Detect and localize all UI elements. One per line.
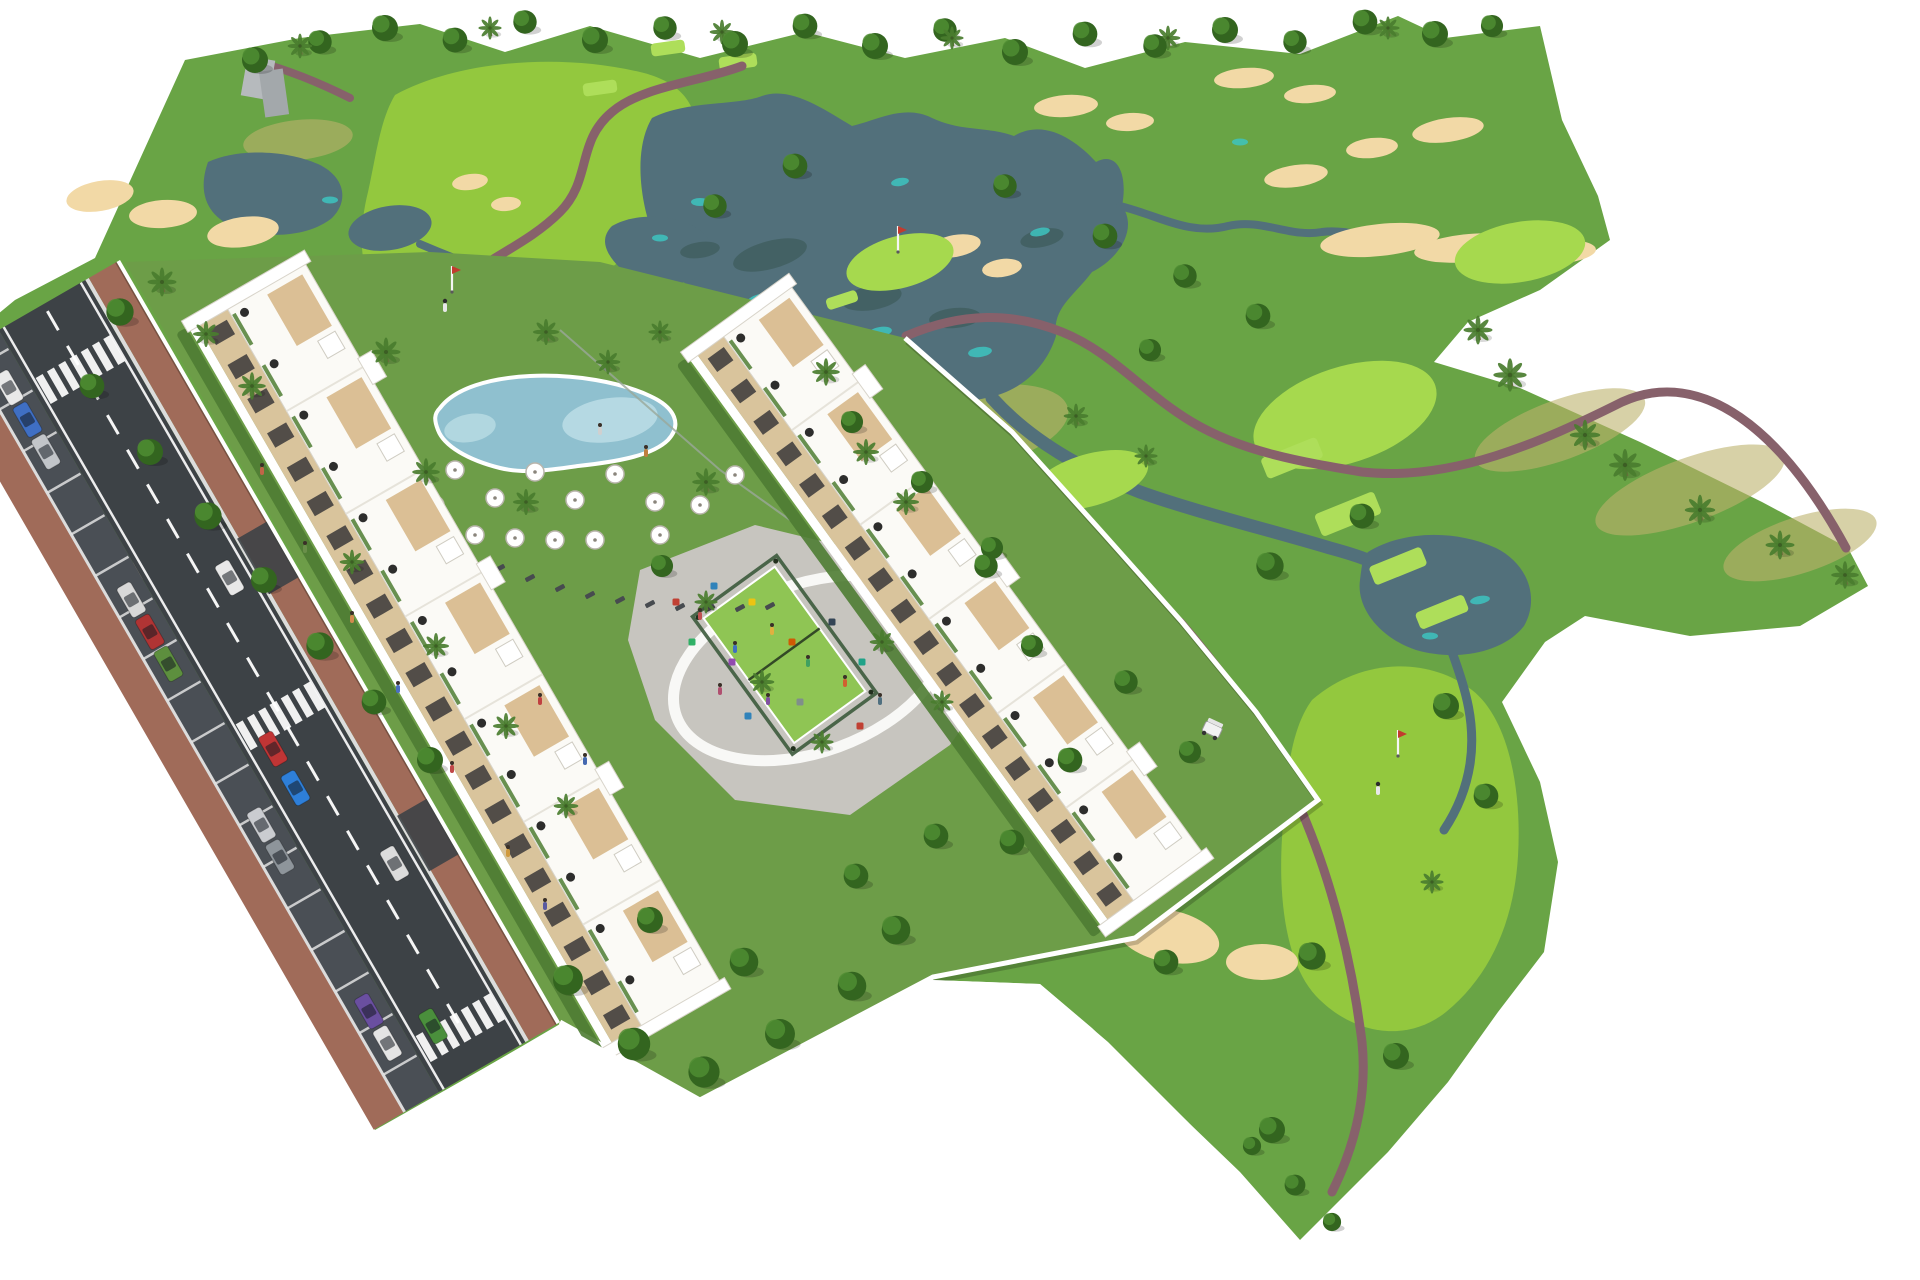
tree-highlight — [793, 14, 809, 30]
tree-highlight — [309, 31, 324, 46]
teal-water-accent — [1232, 139, 1248, 146]
parasol — [526, 463, 544, 481]
tree-highlight — [1139, 339, 1153, 353]
person — [350, 611, 354, 623]
palm-tree — [812, 358, 840, 386]
palm-tree — [288, 34, 313, 59]
tree-highlight — [841, 411, 855, 425]
parasol — [586, 531, 604, 549]
palm-tree — [870, 630, 895, 655]
palm-tree — [1420, 870, 1443, 893]
tree-highlight — [1246, 304, 1262, 320]
tree — [722, 31, 753, 58]
tree — [513, 10, 541, 34]
tree — [1073, 22, 1102, 48]
tree-highlight — [1144, 35, 1159, 50]
tree-highlight — [243, 48, 260, 65]
person-head — [718, 683, 722, 687]
person-body — [543, 902, 547, 910]
tree-highlight — [1323, 1213, 1335, 1225]
tree-highlight — [1115, 671, 1130, 686]
person-body — [878, 697, 882, 705]
golfer-body — [1376, 786, 1380, 795]
playground-equipment — [729, 659, 736, 666]
parasol — [646, 493, 664, 511]
tree-highlight — [195, 503, 213, 521]
person — [770, 623, 774, 635]
person-head — [450, 761, 454, 765]
palm-crown — [864, 450, 868, 454]
palm-crown — [720, 30, 723, 33]
tree-highlight — [1003, 40, 1020, 57]
tree-highlight — [1350, 504, 1366, 520]
palm-tree — [1134, 444, 1157, 467]
palm-crown — [658, 330, 661, 333]
tree-highlight — [107, 299, 125, 317]
person-body — [644, 449, 648, 457]
person — [698, 608, 702, 620]
palm-crown — [1843, 573, 1847, 577]
render-canvas — [0, 0, 1920, 1280]
person-head — [538, 693, 542, 697]
person — [543, 898, 547, 910]
tree-highlight — [1000, 830, 1016, 846]
tree-highlight — [514, 11, 529, 26]
palm-crown — [250, 384, 254, 388]
palm-crown — [350, 560, 353, 563]
tree-highlight — [924, 824, 940, 840]
tree-highlight — [1481, 15, 1495, 29]
parasol — [691, 496, 709, 514]
person-body — [260, 467, 264, 475]
playground-equipment — [711, 583, 718, 590]
person-body — [733, 645, 737, 653]
palm-crown — [1430, 880, 1433, 883]
palm-tree — [148, 268, 177, 297]
person-body — [718, 687, 722, 695]
palm-tree — [193, 321, 219, 347]
person — [766, 693, 770, 705]
palm-crown — [1508, 373, 1513, 378]
playground-equipment — [789, 639, 796, 646]
tree-highlight — [766, 1020, 786, 1040]
palm-crown — [488, 26, 491, 29]
tree-highlight — [638, 908, 655, 925]
person-head — [770, 623, 774, 627]
tree-highlight — [1284, 31, 1299, 46]
palm-tree — [478, 16, 501, 39]
palm-crown — [424, 470, 428, 474]
palm-crown — [704, 600, 707, 603]
tree-highlight — [1260, 1118, 1277, 1135]
person-head — [260, 463, 264, 467]
palm-tree — [423, 633, 449, 659]
tree-highlight — [307, 633, 325, 651]
person-head — [766, 693, 770, 697]
tree — [1283, 30, 1311, 54]
parasol-pole — [453, 468, 457, 472]
tree-highlight — [418, 748, 435, 765]
playground-equipment — [857, 723, 864, 730]
palm-crown — [524, 500, 528, 504]
tree-highlight — [1434, 694, 1451, 711]
person-head — [698, 608, 702, 612]
teal-water-accent — [322, 197, 338, 204]
palm-tree — [1064, 404, 1089, 429]
person-body — [506, 849, 510, 857]
palm-crown — [760, 680, 763, 683]
person-body — [598, 427, 602, 435]
palm-crown — [204, 332, 208, 336]
palm-tree — [853, 439, 879, 465]
palm-crown — [940, 700, 943, 703]
palm-tree — [1609, 449, 1641, 481]
tree-highlight — [783, 154, 799, 170]
tree-highlight — [1154, 950, 1170, 966]
person-body — [766, 697, 770, 705]
parasol-pole — [613, 472, 617, 476]
palm-tree — [648, 320, 671, 343]
person — [878, 693, 882, 705]
tree-highlight — [1243, 1137, 1255, 1149]
person-body — [806, 659, 810, 667]
tree — [1422, 21, 1453, 48]
tree-highlight — [1073, 22, 1089, 38]
parasol-pole — [658, 533, 662, 537]
tree-highlight — [863, 34, 880, 51]
parasol-pole — [573, 498, 577, 502]
parasol-pole — [533, 470, 537, 474]
tree-highlight — [583, 28, 600, 45]
person — [506, 845, 510, 857]
parasol-pole — [493, 496, 497, 500]
tree-highlight — [362, 690, 378, 706]
parasol — [651, 526, 669, 544]
tree — [793, 14, 822, 40]
palm-crown — [820, 740, 823, 743]
person — [806, 655, 810, 667]
palm-tree — [493, 713, 519, 739]
person-head — [350, 611, 354, 615]
parasol — [506, 529, 524, 547]
palm-tree — [238, 372, 266, 400]
palm-crown — [704, 480, 708, 484]
palm-tree — [1831, 561, 1859, 589]
person-body — [770, 627, 774, 635]
person-head — [583, 753, 587, 757]
tree-highlight — [1257, 553, 1275, 571]
tree-highlight — [844, 864, 860, 880]
palm-crown — [1623, 463, 1627, 467]
tree-highlight — [443, 28, 459, 44]
tree-highlight — [1353, 10, 1369, 26]
flag-hole — [896, 250, 899, 253]
aerial-development-render — [0, 0, 1920, 1280]
person-head — [843, 675, 847, 679]
palm-crown — [1144, 454, 1147, 457]
tree-highlight — [704, 195, 719, 210]
palm-tree — [372, 338, 401, 367]
parasol — [486, 489, 504, 507]
person — [303, 541, 307, 553]
palm-crown — [1386, 26, 1389, 29]
person — [644, 445, 648, 457]
parasol — [566, 491, 584, 509]
playground-equipment — [797, 699, 804, 706]
tree-highlight — [654, 17, 669, 32]
palm-tree — [554, 794, 579, 819]
palm-crown — [1476, 328, 1480, 332]
person-body — [450, 765, 454, 773]
parasol — [446, 461, 464, 479]
palm-tree — [412, 458, 440, 486]
palm-tree — [533, 319, 559, 345]
palm-tree — [810, 730, 833, 753]
person-head — [806, 655, 810, 659]
tree — [1481, 15, 1507, 38]
tree-highlight — [1213, 18, 1230, 35]
golfer-head — [1376, 782, 1380, 786]
person — [843, 675, 847, 687]
person — [598, 423, 602, 435]
playground-equipment — [749, 599, 756, 606]
parasol — [546, 531, 564, 549]
person-body — [698, 612, 702, 620]
tree-highlight — [618, 1028, 639, 1049]
palm-crown — [434, 644, 438, 648]
tree-highlight — [1179, 741, 1193, 755]
playground-equipment — [673, 599, 680, 606]
tree — [653, 16, 681, 40]
person — [583, 753, 587, 765]
person-head — [396, 681, 400, 685]
palm-crown — [1074, 414, 1077, 417]
parasol-pole — [513, 536, 517, 540]
palm-crown — [564, 804, 567, 807]
palm-crown — [950, 36, 953, 39]
palm-tree — [340, 550, 365, 575]
palm-tree — [750, 670, 775, 695]
golfer — [443, 299, 447, 312]
tree — [862, 33, 893, 60]
tree-highlight — [1021, 635, 1035, 649]
tree-highlight — [882, 916, 901, 935]
golfer-body — [443, 303, 447, 312]
palm-tree — [1685, 495, 1715, 525]
tree-highlight — [554, 966, 574, 986]
tree-highlight — [1423, 22, 1440, 39]
tree-highlight — [838, 972, 857, 991]
palm-tree — [1493, 358, 1526, 391]
palm-crown — [824, 370, 828, 374]
palm-crown — [1166, 36, 1169, 39]
parasol — [606, 465, 624, 483]
person-body — [303, 545, 307, 553]
flag-hole — [1396, 754, 1399, 757]
palm-tree — [1570, 420, 1600, 450]
palm-crown — [544, 330, 548, 334]
palm-tree — [1766, 531, 1795, 560]
tree — [1323, 1213, 1345, 1232]
person-head — [506, 845, 510, 849]
parasol-pole — [733, 473, 737, 477]
tree-highlight — [1174, 265, 1189, 280]
palm-tree — [1376, 16, 1399, 39]
tree-highlight — [994, 175, 1009, 190]
palm-crown — [1778, 543, 1782, 547]
teal-water-accent — [1422, 633, 1438, 640]
palm-crown — [880, 640, 883, 643]
playground-equipment — [689, 639, 696, 646]
person-body — [843, 679, 847, 687]
parasol-pole — [653, 500, 657, 504]
tree-highlight — [911, 471, 925, 485]
person-head — [733, 641, 737, 645]
tree-highlight — [730, 948, 749, 967]
palm-crown — [504, 724, 508, 728]
palm-tree — [1464, 316, 1493, 345]
palm-crown — [298, 44, 301, 47]
palm-crown — [1698, 508, 1702, 512]
person-head — [543, 898, 547, 902]
person-body — [350, 615, 354, 623]
palm-crown — [160, 280, 164, 284]
person-head — [644, 445, 648, 449]
parasol-pole — [473, 533, 477, 537]
palm-tree — [596, 350, 621, 375]
person-head — [303, 541, 307, 545]
parasol — [726, 466, 744, 484]
tree-highlight — [252, 568, 269, 585]
tree-highlight — [1093, 224, 1109, 240]
person — [538, 693, 542, 705]
palm-tree — [893, 489, 919, 515]
person-head — [598, 423, 602, 427]
parasol-pole — [698, 503, 702, 507]
tree-highlight — [981, 537, 995, 551]
palm-crown — [384, 350, 388, 354]
palm-crown — [904, 500, 908, 504]
flag-hole — [450, 290, 453, 293]
tree-highlight — [1384, 1044, 1401, 1061]
person-body — [396, 685, 400, 693]
person — [733, 641, 737, 653]
palm-tree — [694, 590, 717, 613]
playground-equipment — [829, 619, 836, 626]
tree-highlight — [1058, 748, 1074, 764]
teal-water-accent — [652, 235, 668, 242]
playground-equipment — [859, 659, 866, 666]
tree — [1353, 10, 1382, 36]
parasol-pole — [553, 538, 557, 542]
tree — [1212, 17, 1243, 44]
tree-highlight — [80, 374, 96, 390]
tree-highlight — [373, 16, 390, 33]
person-body — [583, 757, 587, 765]
tree-highlight — [1474, 784, 1490, 800]
playground-equipment — [745, 713, 752, 720]
person — [718, 683, 722, 695]
tree-highlight — [651, 555, 665, 569]
sand-bunker — [1226, 944, 1298, 980]
tree-highlight — [1285, 1175, 1299, 1189]
palm-crown — [1583, 433, 1587, 437]
golfer — [1376, 782, 1380, 795]
tree-highlight — [689, 1057, 709, 1077]
parasol — [466, 526, 484, 544]
palm-tree — [692, 468, 720, 496]
tree-highlight — [138, 440, 155, 457]
person-head — [878, 693, 882, 697]
person — [260, 463, 264, 475]
tree-highlight — [1299, 943, 1317, 961]
palm-tree — [940, 26, 963, 49]
palm-crown — [606, 360, 609, 363]
parasol-pole — [593, 538, 597, 542]
person — [396, 681, 400, 693]
person — [450, 761, 454, 773]
palm-tree — [930, 690, 953, 713]
tree-highlight — [975, 555, 990, 570]
golfer-head — [443, 299, 447, 303]
person-body — [538, 697, 542, 705]
tree-highlight — [723, 32, 740, 49]
palm-tree — [513, 489, 539, 515]
